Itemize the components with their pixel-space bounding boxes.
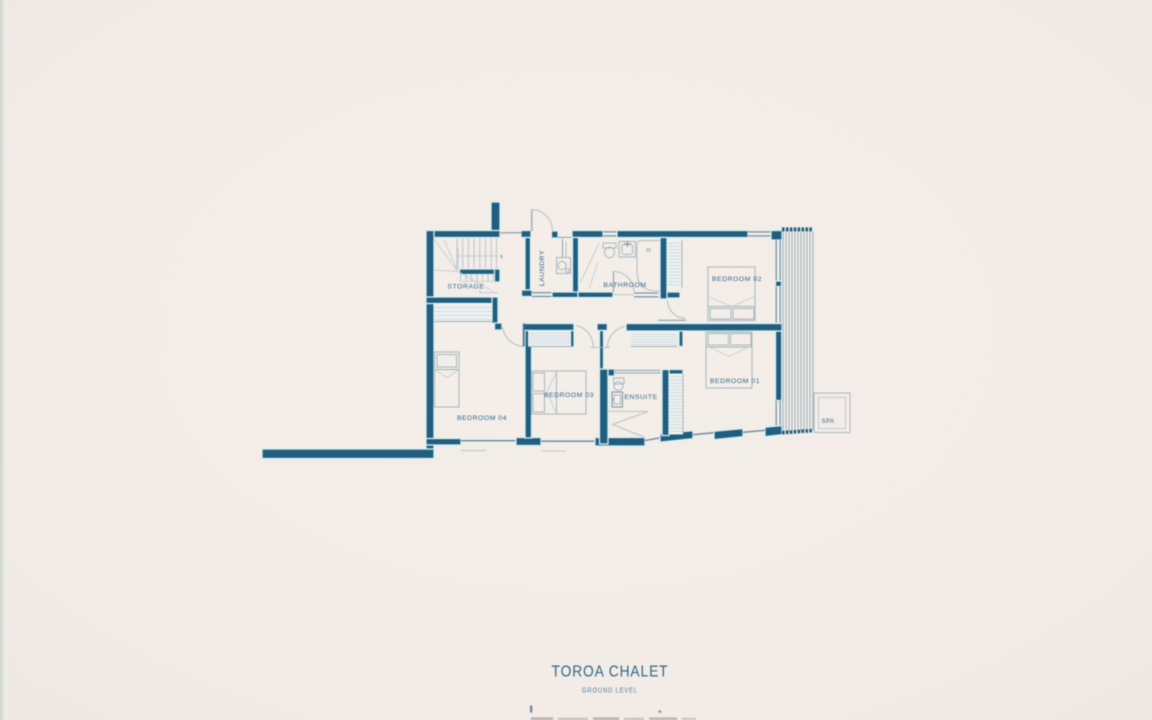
svg-text:LAUNDRY: LAUNDRY [539,250,546,286]
svg-text:GROUND LEVEL: GROUND LEVEL [582,686,638,695]
svg-text:TOROA CHALET: TOROA CHALET [552,664,669,681]
svg-text:BEDROOM 03: BEDROOM 03 [544,392,594,399]
svg-text:BEDROOM 04: BEDROOM 04 [457,415,507,422]
svg-text:BATHROOM: BATHROOM [603,282,646,289]
svg-text:STORAGE: STORAGE [448,284,485,291]
svg-text:SPA: SPA [821,419,834,425]
svg-text:BEDROOM 02: BEDROOM 02 [712,276,762,283]
svg-text:BEDROOM 01: BEDROOM 01 [710,378,760,385]
svg-text:ENSUITE: ENSUITE [624,394,657,401]
svg-text:5: 5 [500,254,503,259]
